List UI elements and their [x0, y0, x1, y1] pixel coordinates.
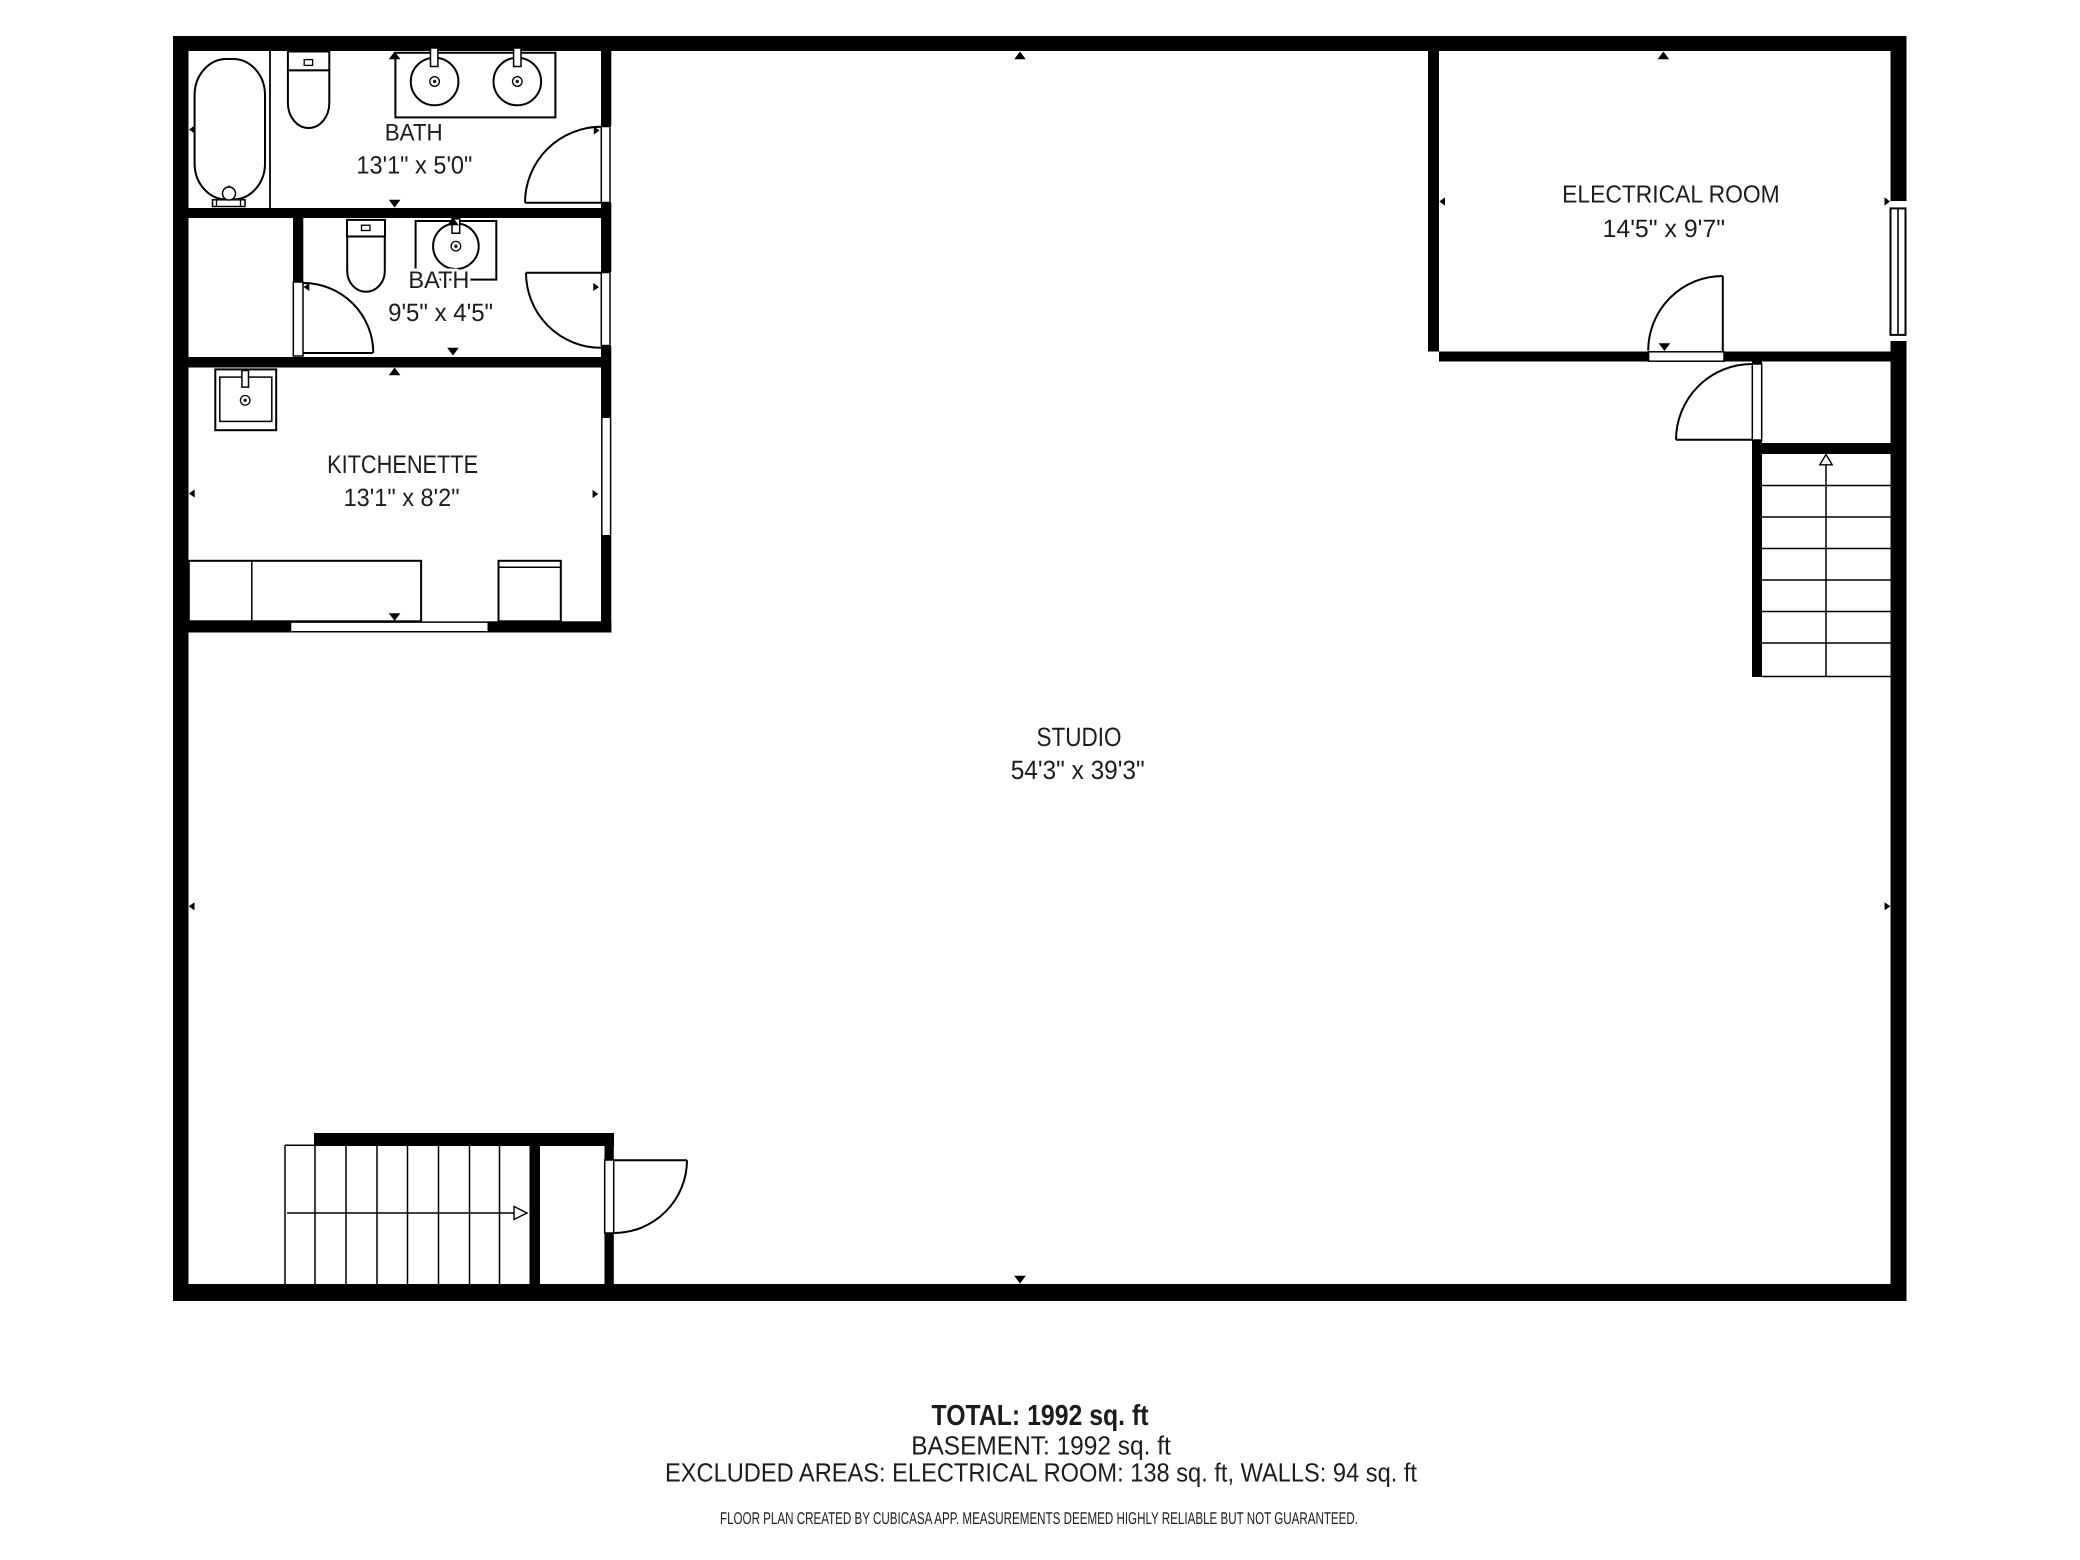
svg-text:13'1" x 8'2": 13'1" x 8'2" [344, 484, 460, 512]
svg-text:14'5" x 9'7": 14'5" x 9'7" [1603, 215, 1726, 243]
svg-text:54'3" x 39'3": 54'3" x 39'3" [1011, 755, 1145, 785]
svg-text:TOTAL: 1992 sq. ft: TOTAL: 1992 sq. ft [932, 1400, 1149, 1432]
svg-text:FLOOR PLAN CREATED BY CUBICASA: FLOOR PLAN CREATED BY CUBICASA APP. MEAS… [720, 1509, 1358, 1528]
svg-text:BATH: BATH [385, 120, 443, 147]
svg-text:EXCLUDED AREAS: ELECTRICAL ROO: EXCLUDED AREAS: ELECTRICAL ROOM: 138 sq.… [665, 1458, 1418, 1488]
svg-text:BASEMENT: 1992 sq. ft: BASEMENT: 1992 sq. ft [911, 1431, 1171, 1461]
svg-text:STUDIO: STUDIO [1037, 722, 1122, 752]
svg-text:KITCHENETTE: KITCHENETTE [327, 451, 478, 479]
svg-text:ELECTRICAL ROOM: ELECTRICAL ROOM [1562, 181, 1780, 208]
svg-text:9'5" x 4'5": 9'5" x 4'5" [388, 299, 493, 327]
svg-text:BATH: BATH [408, 267, 469, 294]
svg-text:13'1" x 5'0": 13'1" x 5'0" [356, 151, 472, 179]
